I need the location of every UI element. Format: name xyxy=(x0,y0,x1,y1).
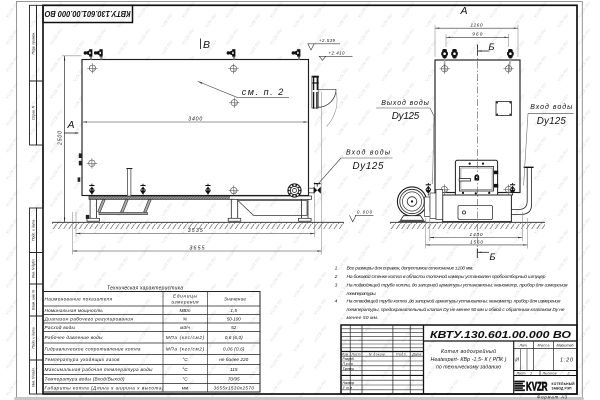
svg-text:Dy125: Dy125 xyxy=(353,161,385,172)
svg-text:Н.контр.: Н.контр. xyxy=(343,381,355,385)
svg-text:KVZR: KVZR xyxy=(526,381,548,393)
svg-text:КВТУ.130.601.00.000 ВО: КВТУ.130.601.00.000 ВО xyxy=(45,9,131,18)
svg-text:50-100: 50-100 xyxy=(227,316,241,321)
svg-text:Взам. инв. N: Взам. инв. N xyxy=(32,290,36,310)
svg-text:Диапазон рабочего регулировани: Диапазон рабочего регулирования xyxy=(44,316,134,321)
svg-text:Dy125: Dy125 xyxy=(392,111,420,122)
svg-text:Наименование показателя: Наименование показателя xyxy=(45,296,113,301)
svg-text:2: 2 xyxy=(334,274,338,280)
svg-text:Перв. примен.: Перв. примен. xyxy=(32,32,36,55)
svg-text:960: 960 xyxy=(472,32,482,37)
svg-text:Масштаб: Масштаб xyxy=(557,344,575,348)
svg-text:115: 115 xyxy=(230,367,238,372)
svg-text:0.000: 0.000 xyxy=(357,210,373,215)
svg-text:Температура уходящих газов: Температура уходящих газов xyxy=(45,357,121,362)
svg-text:На подводящей трубе котла, до: На подводящей трубе котла, до запорной а… xyxy=(347,282,568,289)
svg-text:Вход воды: Вход воды xyxy=(346,148,391,156)
svg-text:3400: 3400 xyxy=(188,116,202,122)
svg-text:3: 3 xyxy=(335,283,338,289)
svg-text:1430: 1430 xyxy=(470,232,483,238)
svg-text:Гидравлическое сопротивление к: Гидравлическое сопротивление котла xyxy=(45,346,141,351)
svg-text:Подп. и дата: Подп. и дата xyxy=(32,220,36,241)
svg-text:МВт: МВт xyxy=(180,308,191,313)
svg-text:Масса: Масса xyxy=(538,344,550,348)
svg-text:Инв. N дубл.: Инв. N дубл. xyxy=(32,258,36,278)
svg-text:+2.410: +2.410 xyxy=(329,51,346,56)
svg-text:На боковой стенке котла в обла: На боковой стенке котла в области топочн… xyxy=(347,273,546,280)
svg-text:Т.контр.: Т.контр. xyxy=(343,367,355,371)
svg-text:На отводящей трубе котла ,до з: На отводящей трубе котла ,до запорной ар… xyxy=(347,298,561,305)
svg-text:Б: Б xyxy=(488,42,494,53)
svg-text:Dy125: Dy125 xyxy=(537,116,567,127)
svg-text:Подп. и дата: Подп. и дата xyxy=(32,327,36,348)
svg-text:°С: °С xyxy=(182,377,188,382)
svg-text:Лит.: Лит. xyxy=(519,344,528,348)
svg-text:2500: 2500 xyxy=(58,131,64,146)
svg-text:1,5: 1,5 xyxy=(230,308,237,313)
svg-text:температуры, предохранительный: температуры, предохранительный клапан Dу… xyxy=(347,306,565,313)
svg-text:Котел водогрейный: Котел водогрейный xyxy=(441,348,496,355)
svg-text:1260: 1260 xyxy=(471,23,483,28)
svg-text:Утв.: Утв. xyxy=(343,386,355,390)
svg-text:по техническому заданию: по техническому заданию xyxy=(436,364,501,370)
svg-text:Номинальная мощность: Номинальная мощность xyxy=(45,308,104,313)
svg-text:Heatexpert- КВр -1,5- К ( РПК: Heatexpert- КВр -1,5- К ( РПК ) xyxy=(431,357,507,363)
svg-text:Техническая характеристика: Техническая характеристика xyxy=(107,285,183,291)
svg-text:Значение: Значение xyxy=(224,296,246,301)
svg-text:1: 1 xyxy=(335,266,338,272)
svg-text:Все размеры для справок, допус: Все размеры для справок, допустимое откл… xyxy=(347,266,474,272)
svg-text:Выход воды: Выход воды xyxy=(381,99,429,107)
svg-text:измерения: измерения xyxy=(172,300,199,305)
svg-text:МПа (кгс/см2): МПа (кгс/см2) xyxy=(166,346,205,351)
svg-text:N докум.: N докум. xyxy=(369,352,386,356)
svg-text:ЗАВОД РЭП: ЗАВОД РЭП xyxy=(552,386,573,390)
svg-text:А: А xyxy=(459,5,467,17)
svg-text:Б: Б xyxy=(489,252,495,263)
svg-text:Рабочее давление воды: Рабочее давление воды xyxy=(45,335,104,340)
svg-text:МПа (кгс/см2): МПа (кгс/см2) xyxy=(166,335,205,340)
svg-text:70/95: 70/95 xyxy=(228,377,240,382)
svg-text:В: В xyxy=(203,39,210,51)
svg-text:%: % xyxy=(183,316,187,321)
svg-text:Единицы: Единицы xyxy=(173,294,198,299)
svg-text:Изм.: Изм. xyxy=(342,352,350,356)
svg-text:Расход воды: Расход воды xyxy=(45,325,76,330)
svg-text:А: А xyxy=(66,119,74,131)
svg-text:температуры.: температуры. xyxy=(347,292,377,297)
svg-text:Температура воды (Вход/Выход): Температура воды (Вход/Выход) xyxy=(45,377,125,382)
svg-text:менее 50 мм.: менее 50 мм. xyxy=(347,315,379,321)
svg-text:3655х1530х2570: 3655х1530х2570 xyxy=(213,385,254,390)
svg-text:КВТУ.130.601.00.000 ВО: КВТУ.130.601.00.000 ВО xyxy=(430,330,571,341)
svg-text:Дата: Дата xyxy=(411,352,421,356)
svg-text:Максимальная рабочая температу: Максимальная рабочая температура воды xyxy=(45,367,154,372)
svg-text:мм: мм xyxy=(182,385,189,390)
svg-text:КОТЕЛЬНЫЙ: КОТЕЛЬНЫЙ xyxy=(552,382,576,386)
svg-text:Разраб.: Разраб. xyxy=(343,357,355,361)
svg-text:0,06 (0,6): 0,06 (0,6) xyxy=(223,346,245,351)
svg-text:0,6 (6,0): 0,6 (6,0) xyxy=(225,335,243,340)
svg-text:Лист: Лист xyxy=(351,352,361,356)
svg-text:4: 4 xyxy=(335,299,338,305)
svg-text:Пров.: Пров. xyxy=(343,362,355,366)
svg-text:°С: °С xyxy=(182,357,188,362)
svg-text:3655: 3655 xyxy=(190,245,205,251)
svg-text:не более 220: не более 220 xyxy=(219,357,248,362)
svg-text:1:20: 1:20 xyxy=(560,358,574,364)
svg-text:Формат А3: Формат А3 xyxy=(537,395,568,400)
svg-text:Подп.: Подп. xyxy=(396,352,407,356)
svg-text:3535: 3535 xyxy=(188,228,203,234)
svg-text:Вход воды: Вход воды xyxy=(530,103,573,111)
svg-text:1560: 1560 xyxy=(470,239,483,245)
svg-text:Габариты котла (Длина x ширина: Габариты котла (Длина x ширина x высота) xyxy=(45,385,164,390)
svg-text:Справ. N: Справ. N xyxy=(32,105,36,120)
svg-text:м3/ч: м3/ч xyxy=(180,325,190,330)
svg-text:Инв. N подл.: Инв. N подл. xyxy=(32,367,36,387)
svg-text:И: И xyxy=(515,358,519,364)
svg-text:52: 52 xyxy=(231,325,237,330)
svg-text:+2.539: +2.539 xyxy=(319,38,336,43)
svg-text:°С: °С xyxy=(182,367,188,372)
